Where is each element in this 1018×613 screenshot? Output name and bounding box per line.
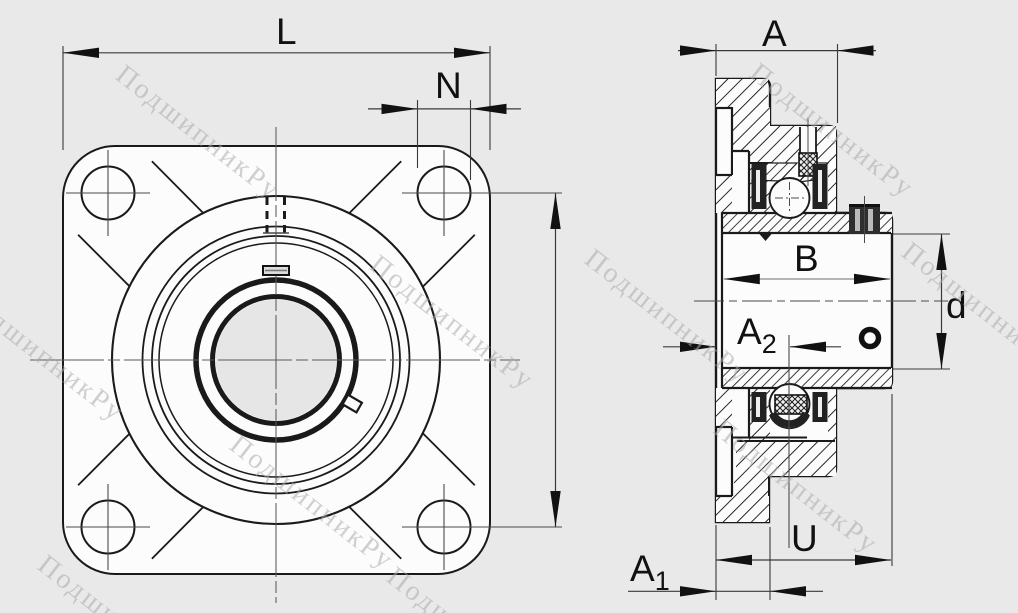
svg-text:B: B xyxy=(794,238,819,279)
svg-text:N: N xyxy=(435,65,462,106)
svg-text:A: A xyxy=(762,13,787,54)
svg-text:U: U xyxy=(791,518,818,559)
svg-text:L: L xyxy=(276,11,297,52)
